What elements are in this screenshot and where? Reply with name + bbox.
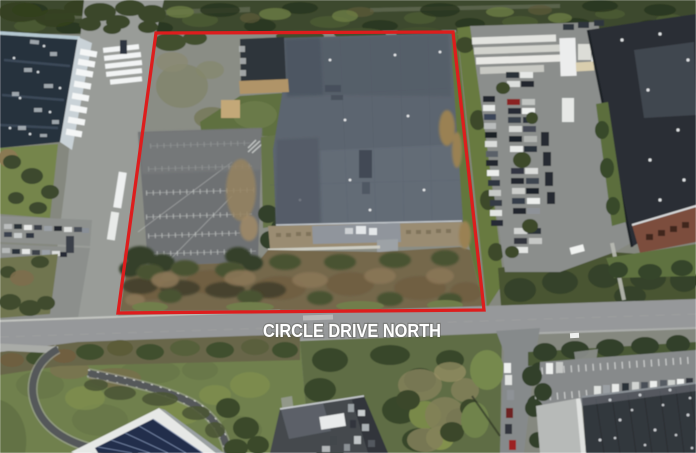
- svg-text:CIRCLE DRIVE NORTH: CIRCLE DRIVE NORTH: [263, 321, 441, 341]
